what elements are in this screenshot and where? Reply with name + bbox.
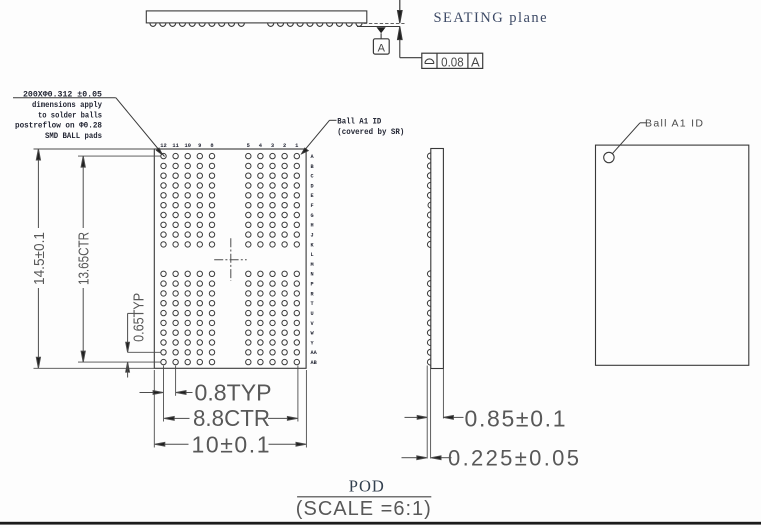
svg-text:3: 3 — [271, 143, 274, 149]
svg-text:P: P — [311, 282, 314, 288]
svg-text:C: C — [311, 174, 314, 180]
svg-text:0.8TYP: 0.8TYP — [195, 379, 272, 405]
svg-text:AA: AA — [311, 350, 318, 356]
svg-text:5: 5 — [247, 143, 250, 149]
svg-text:8: 8 — [210, 143, 213, 149]
svg-text:H: H — [311, 223, 314, 229]
svg-text:B: B — [311, 164, 314, 170]
svg-text:11: 11 — [172, 143, 178, 149]
svg-text:2: 2 — [283, 143, 286, 149]
svg-text:8.8CTR: 8.8CTR — [193, 405, 270, 431]
svg-text:L: L — [311, 252, 314, 258]
svg-text:F: F — [311, 203, 314, 209]
svg-text:M: M — [311, 262, 314, 268]
svg-text:U: U — [311, 311, 314, 317]
svg-text:AB: AB — [311, 360, 317, 366]
svg-text:postreflow on Φ0.28: postreflow on Φ0.28 — [15, 121, 102, 131]
svg-text:N: N — [311, 272, 314, 278]
svg-text:to solder balls: to solder balls — [38, 110, 102, 120]
svg-text:0.85±0.1: 0.85±0.1 — [465, 405, 566, 431]
svg-text:SMD BALL pads: SMD BALL pads — [45, 131, 102, 141]
svg-text:Ball A1 ID: Ball A1 ID — [337, 117, 381, 127]
svg-text:POD: POD — [349, 476, 385, 495]
svg-text:13.65CTR: 13.65CTR — [76, 232, 93, 285]
svg-text:12: 12 — [160, 143, 166, 149]
svg-text:10: 10 — [184, 143, 190, 149]
svg-text:(SCALE =6:1): (SCALE =6:1) — [296, 498, 431, 520]
svg-text:A: A — [471, 54, 480, 69]
svg-text:SEATING plane: SEATING plane — [434, 10, 547, 26]
svg-text:A: A — [378, 42, 386, 54]
svg-text:0.65TYP: 0.65TYP — [131, 293, 148, 342]
svg-text:E: E — [311, 193, 314, 199]
svg-text:G: G — [311, 213, 314, 219]
svg-text:1: 1 — [295, 143, 298, 149]
svg-text:T: T — [311, 301, 314, 307]
svg-text:14.5±0.1: 14.5±0.1 — [31, 232, 48, 285]
svg-text:10±0.1: 10±0.1 — [192, 432, 270, 458]
svg-text:J: J — [311, 233, 314, 239]
svg-text:9: 9 — [198, 143, 201, 149]
svg-text:Ball A1 ID: Ball A1 ID — [645, 117, 703, 129]
svg-text:dimensions apply: dimensions apply — [32, 100, 102, 110]
svg-text:0.08: 0.08 — [441, 54, 464, 69]
svg-text:(covered by SR): (covered by SR) — [337, 127, 404, 137]
svg-text:D: D — [311, 183, 314, 189]
